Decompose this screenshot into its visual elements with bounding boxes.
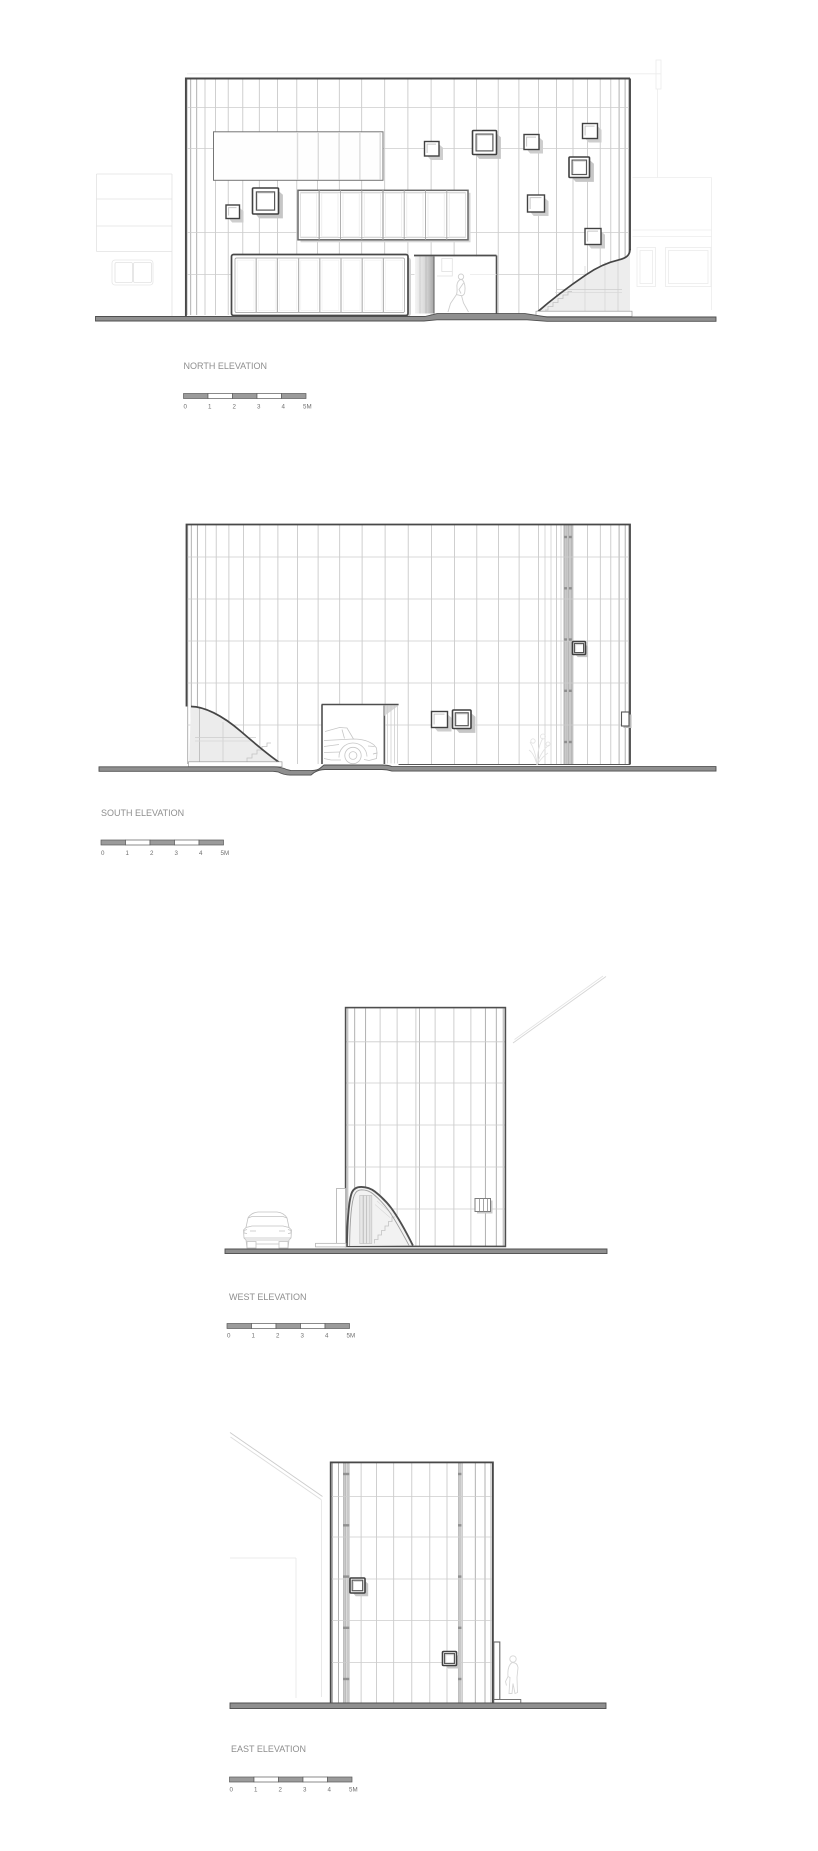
svg-text:3: 3	[257, 404, 261, 411]
svg-text:2: 2	[276, 1333, 280, 1340]
svg-text:1: 1	[252, 1333, 256, 1340]
svg-text:1: 1	[254, 1787, 258, 1794]
svg-text:3: 3	[303, 1787, 307, 1794]
svg-text:5M: 5M	[347, 1333, 356, 1340]
svg-text:WEST ELEVATION: WEST ELEVATION	[229, 1292, 307, 1302]
svg-text:4: 4	[328, 1787, 332, 1794]
svg-text:1: 1	[208, 404, 212, 411]
svg-text:0: 0	[101, 850, 105, 857]
svg-text:0: 0	[227, 1333, 231, 1340]
svg-text:2: 2	[233, 404, 237, 411]
svg-text:5M: 5M	[221, 850, 230, 857]
svg-text:4: 4	[199, 850, 203, 857]
svg-text:3: 3	[175, 850, 179, 857]
svg-text:5M: 5M	[303, 404, 312, 411]
svg-text:2: 2	[279, 1787, 283, 1794]
svg-text:4: 4	[282, 404, 286, 411]
svg-text:0: 0	[230, 1787, 234, 1794]
svg-text:2: 2	[150, 850, 154, 857]
svg-text:3: 3	[301, 1333, 305, 1340]
svg-text:EAST ELEVATION: EAST ELEVATION	[231, 1744, 306, 1754]
svg-text:1: 1	[126, 850, 130, 857]
svg-text:SOUTH ELEVATION: SOUTH ELEVATION	[101, 808, 184, 818]
svg-text:4: 4	[325, 1333, 329, 1340]
svg-text:NORTH ELEVATION: NORTH ELEVATION	[184, 361, 268, 371]
svg-text:0: 0	[184, 404, 188, 411]
svg-text:5M: 5M	[349, 1787, 358, 1794]
